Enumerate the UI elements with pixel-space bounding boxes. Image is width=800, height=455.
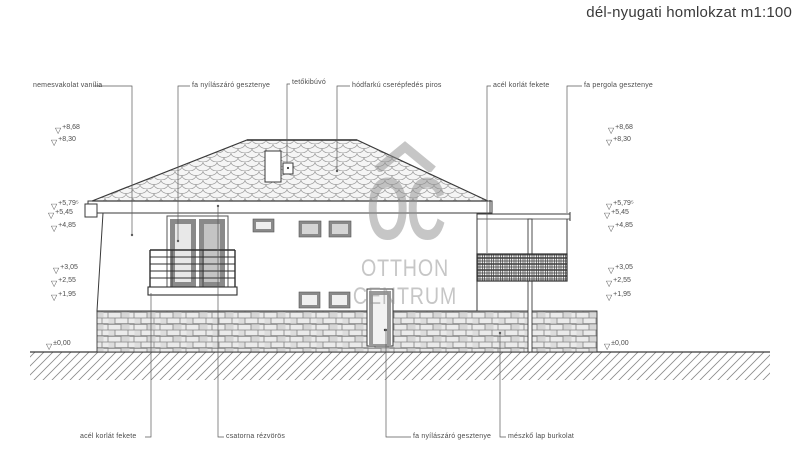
- level-marker: ▽+3,05: [53, 264, 78, 275]
- annotation-plaster: nemesvakolat vanília: [33, 82, 102, 89]
- pergola-post: [528, 219, 532, 352]
- level-marker-icon: ▽: [604, 212, 610, 220]
- level-marker: ▽+1,95: [606, 291, 631, 302]
- level-marker-icon: ▽: [48, 212, 54, 220]
- annotation-roof-tiles: hódfarkú cserépfedés piros: [352, 82, 442, 89]
- annotation-upper-window: fa nyílászáró gesztenye: [192, 82, 270, 89]
- entry-door: [367, 289, 393, 346]
- level-value: +5,45: [55, 209, 73, 216]
- level-marker-icon: ▽: [53, 267, 59, 275]
- level-value: +4,85: [615, 222, 633, 229]
- level-marker-icon: ▽: [606, 294, 612, 302]
- level-marker-icon: ▽: [608, 267, 614, 275]
- level-marker-icon: ▽: [51, 294, 57, 302]
- level-value: +5,79⁵: [613, 200, 634, 207]
- level-value: +8,30: [613, 136, 631, 143]
- level-marker-icon: ▽: [51, 280, 57, 288]
- level-marker-icon: ▽: [608, 127, 614, 135]
- level-value: +5,79⁵: [58, 200, 79, 207]
- upper-window-1: [299, 221, 321, 237]
- level-marker: ▽+8,68: [608, 124, 633, 135]
- annotation-roof-hatch: tetőkibúvó: [292, 79, 326, 86]
- annotation-gutter: csatorna rézvörös: [226, 433, 285, 440]
- level-marker: ▽+8,30: [606, 136, 631, 147]
- balcony-door: [167, 216, 228, 290]
- pergola-mesh-railing: [477, 254, 567, 281]
- level-marker-icon: ▽: [51, 225, 57, 233]
- level-marker-icon: ▽: [606, 139, 612, 147]
- level-marker: ▽±0,00: [604, 340, 629, 351]
- level-value: +4,85: [58, 222, 76, 229]
- upper-window-2: [329, 221, 351, 237]
- ground-hatch: [30, 352, 770, 380]
- level-marker-icon: ▽: [51, 139, 57, 147]
- level-value: +2,55: [613, 277, 631, 284]
- annotation-pergola: fa pergola gesztenye: [584, 82, 653, 89]
- level-value: +3,05: [615, 264, 633, 271]
- lower-window-2: [329, 292, 350, 308]
- annotation-steel-railing-bottom: acél korlát fekete: [80, 433, 137, 440]
- annotation-lower-door: fa nyílászáró gesztenye: [413, 433, 491, 440]
- upper-window-small: [253, 219, 274, 232]
- level-value: +8,68: [615, 124, 633, 131]
- lower-window-1: [299, 292, 320, 308]
- level-value: ±0,00: [53, 340, 70, 347]
- level-marker: ▽+1,95: [51, 291, 76, 302]
- annotation-steel-railing-top: acél korlát fekete: [493, 82, 550, 89]
- level-marker-icon: ▽: [608, 225, 614, 233]
- level-value: +5,45: [611, 209, 629, 216]
- level-marker: ▽+2,55: [51, 277, 76, 288]
- level-marker: ▽+4,85: [51, 222, 76, 233]
- level-value: +8,68: [62, 124, 80, 131]
- level-marker: ▽+2,55: [606, 277, 631, 288]
- gutter-end: [85, 204, 97, 217]
- level-marker-icon: ▽: [55, 127, 61, 135]
- level-marker: ▽+5,45: [604, 209, 629, 220]
- level-marker: ▽±0,00: [46, 340, 71, 351]
- level-marker: ▽+5,45: [48, 209, 73, 220]
- level-value: +1,95: [613, 291, 631, 298]
- level-marker: ▽+8,30: [51, 136, 76, 147]
- level-marker: ▽+3,05: [608, 264, 633, 275]
- level-marker: ▽+8,68: [55, 124, 80, 135]
- annotation-limestone: mészkő lap burkolat: [508, 433, 574, 440]
- level-value: ±0,00: [611, 340, 628, 347]
- level-marker: ▽+4,85: [608, 222, 633, 233]
- elevation-drawing-sheet: dél-nyugati homlokzat m1:100: [0, 0, 800, 455]
- level-value: +2,55: [58, 277, 76, 284]
- level-value: +1,95: [58, 291, 76, 298]
- level-value: +8,30: [58, 136, 76, 143]
- main-wall: [97, 213, 477, 311]
- level-marker-icon: ▽: [604, 343, 610, 351]
- level-value: +3,05: [60, 264, 78, 271]
- masonry-base: [97, 311, 597, 352]
- facade-drawing: [0, 0, 800, 455]
- level-marker-icon: ▽: [46, 343, 52, 351]
- level-marker-icon: ▽: [606, 280, 612, 288]
